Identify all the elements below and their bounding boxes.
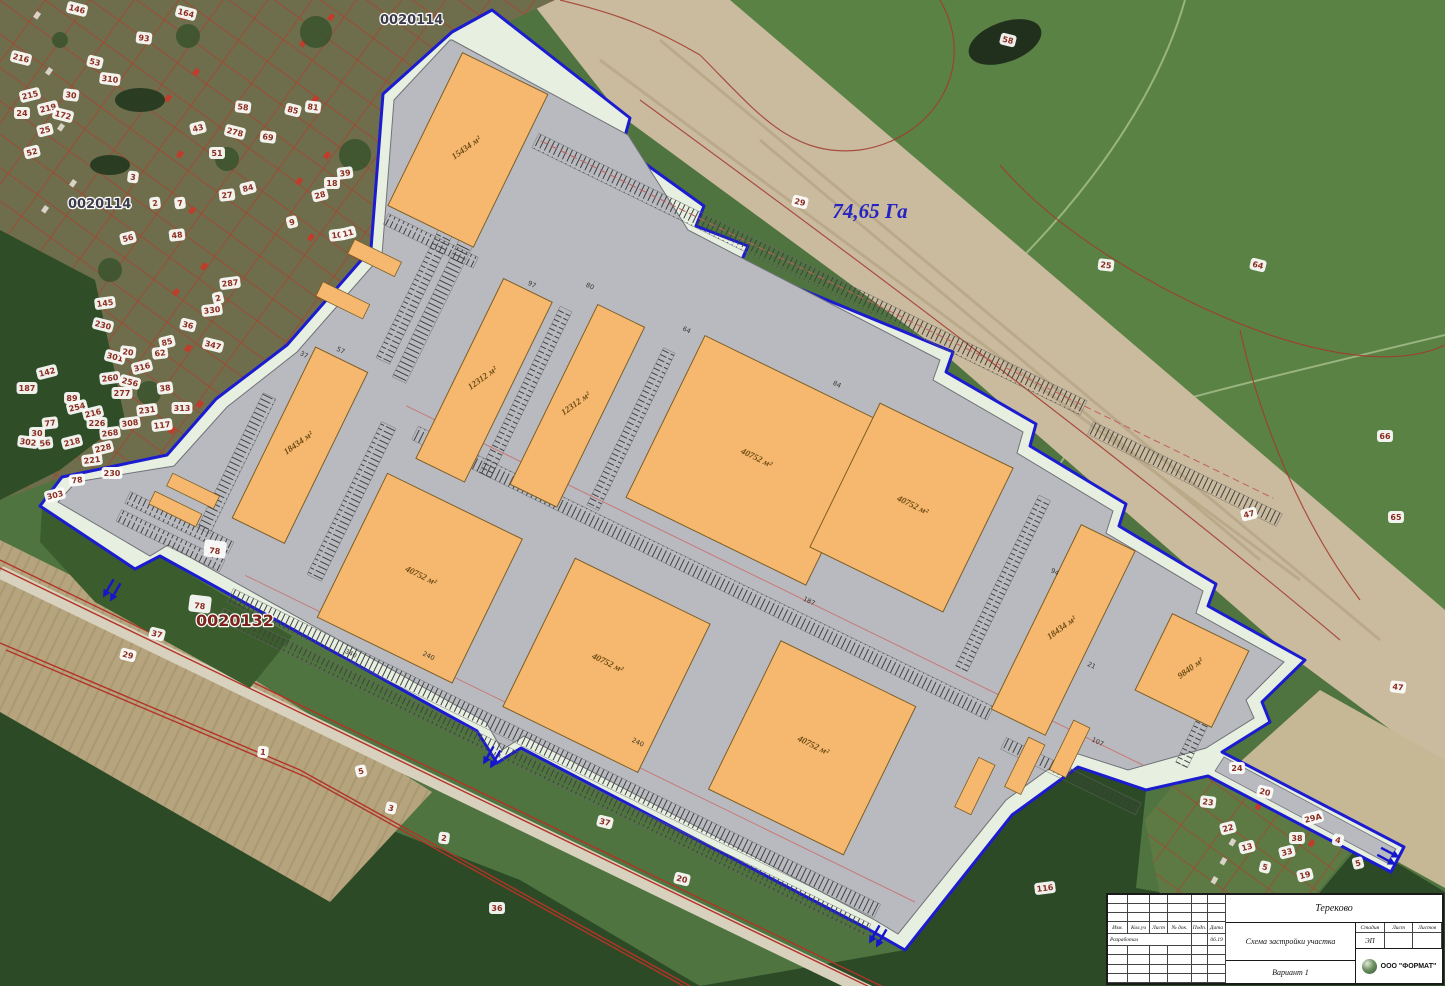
rev-empty-cell [1192, 895, 1208, 904]
parcel-number: 24 [1231, 764, 1243, 773]
rev-empty-cell [1208, 913, 1226, 922]
cadastral-quarter-left: 0020114 [68, 197, 131, 212]
rev-empty-cell [1192, 946, 1208, 955]
parcel-number: 30 [65, 90, 78, 100]
rev-header-cell: Кол.уч [1128, 922, 1150, 933]
village-pond [90, 155, 130, 175]
parcel-number: 226 [89, 419, 106, 428]
parcel-badge: 310 [99, 72, 121, 86]
rev-empty-cell [1108, 965, 1128, 974]
parcel-badge: 226 [87, 417, 108, 429]
parcel-badge: 2 [438, 831, 450, 844]
rev-empty-cell [1192, 974, 1208, 983]
parcel-number: 56 [39, 438, 52, 448]
parcel-number: 230 [104, 469, 121, 478]
rev-empty-cell [1108, 946, 1128, 955]
parcel-badge: 230 [102, 467, 123, 479]
parcel-number: 23 [1202, 797, 1214, 807]
rev-header-cell: Подп. [1192, 922, 1208, 933]
sheet-value [1385, 933, 1414, 948]
parcel-badge: 30 [62, 88, 79, 102]
parcel-badge: 23 [1199, 795, 1216, 809]
rev-empty-cell [1108, 974, 1128, 983]
parcel-badge: 287 [219, 276, 241, 290]
cadastral-quarter-top: 0020114 [380, 13, 443, 28]
stage-value: ЭП [1356, 933, 1385, 948]
date-cell: 06.19 [1208, 934, 1226, 946]
rev-empty-cell [1150, 904, 1168, 913]
parcel-number: 65 [1390, 513, 1402, 522]
rev-empty-cell [1192, 934, 1208, 946]
parcel-badge: 24 [1229, 762, 1245, 774]
company-name: ООО "ФОРМАТ" [1381, 963, 1437, 970]
parcel-number: 66 [1379, 432, 1391, 441]
parcel-badge: 51 [209, 147, 225, 159]
parcel-badge: 260 [99, 371, 121, 385]
rev-empty-cell [1150, 895, 1168, 904]
rev-empty-cell [1192, 955, 1208, 964]
rev-empty-cell [1108, 904, 1128, 913]
parcel-number: 18 [326, 179, 338, 188]
tree-clump [52, 32, 68, 48]
parcel-badge: 81 [304, 100, 321, 114]
parcel-badge: 3 [127, 170, 139, 183]
parcel-badge: 24 [14, 107, 30, 119]
rev-empty-cell [1128, 904, 1150, 913]
rev-header-cell: Дата [1208, 922, 1226, 933]
parcel-badge: 58 [234, 100, 251, 114]
village-pond [115, 88, 165, 112]
rev-empty-cell [1168, 904, 1192, 913]
rev-empty-cell [1150, 974, 1168, 983]
parcel-badge: 38 [156, 381, 173, 395]
parcel-number: 38 [159, 383, 172, 393]
total-area-label: 74,65 Га [832, 199, 907, 223]
title-block: Изм.Кол.учЛист№ док.Подп.ДатаРазработал0… [1106, 893, 1444, 985]
rev-empty-cell [1150, 955, 1168, 964]
rev-empty-cell [1208, 965, 1226, 974]
rev-header-cell: № док. [1168, 922, 1192, 933]
site-plan-map: 15434 м²12312 м²12312 м²40752 м²40752 м²… [0, 0, 1445, 986]
tree-clump [339, 139, 371, 171]
parcel-badge: 7 [174, 196, 186, 209]
parcel-number: 38 [1291, 834, 1303, 843]
parcel-number: 25 [1100, 260, 1113, 270]
parcel-number: 77 [44, 418, 56, 428]
parcel-badge: 25 [1097, 258, 1114, 272]
rev-header-cell: Лист [1150, 922, 1168, 933]
parcel-number: 93 [138, 33, 150, 43]
rev-empty-cell [1128, 913, 1150, 922]
rev-header-cell: Изм. [1108, 922, 1128, 933]
rev-empty-cell [1192, 904, 1208, 913]
project-name: Тереково [1226, 895, 1442, 923]
parcel-number: 2 [441, 834, 448, 844]
tree-clump [176, 24, 200, 48]
rev-empty-cell [1208, 955, 1226, 964]
parcel-number: 47 [1392, 682, 1404, 692]
rev-empty-cell [1150, 913, 1168, 922]
rev-empty-cell [1150, 946, 1168, 955]
parcel-badge: 93 [135, 31, 152, 45]
parcel-badge: 62 [151, 346, 168, 360]
rev-empty-cell [1108, 955, 1128, 964]
company-logo-cell: ООО "ФОРМАТ" [1356, 949, 1442, 983]
parcel-badge: 231 [136, 403, 158, 417]
parcel-badge: 308 [119, 416, 141, 430]
parcel-number: 187 [19, 384, 36, 393]
parcel-number: 3 [130, 173, 137, 183]
parcel-number: 277 [114, 389, 131, 398]
document-title: Схема застройки участка [1226, 923, 1355, 961]
parcel-badge: 78 [203, 539, 227, 559]
sheets-label: Листов [1413, 923, 1442, 932]
rev-empty-cell [1150, 965, 1168, 974]
parcel-number: 69 [262, 132, 275, 142]
rev-empty-cell [1128, 946, 1150, 955]
parcel-number: 36 [491, 904, 503, 913]
parcel-badge: 117 [151, 418, 173, 432]
rev-empty-cell [1108, 913, 1128, 922]
parcel-badge: 330 [201, 303, 223, 317]
parcel-badge: 2 [149, 196, 161, 209]
rev-empty-cell [1168, 965, 1192, 974]
parcel-number: 58 [237, 102, 250, 112]
parcel-badge: 221 [81, 453, 103, 467]
revision-table: Изм.Кол.учЛист№ док.Подп.ДатаРазработал0… [1108, 895, 1226, 983]
parcel-badge: 20 [119, 345, 136, 359]
developed-label: Разработал [1108, 934, 1192, 946]
parcel-number: 78 [71, 475, 84, 485]
rev-empty-cell [1108, 895, 1128, 904]
rev-empty-cell [1208, 946, 1226, 955]
parcel-number: 30 [31, 429, 43, 438]
rev-empty-cell [1128, 965, 1150, 974]
rev-empty-cell [1168, 955, 1192, 964]
parcel-badge: 277 [112, 387, 133, 399]
parcel-number: 2 [152, 199, 159, 209]
stage-label: Стадия [1356, 923, 1385, 932]
parcel-badge: 313 [172, 402, 193, 414]
parcel-number: 51 [211, 149, 223, 158]
rev-empty-cell [1168, 946, 1192, 955]
cadastral-quarter-bottom: 0020132 [196, 611, 274, 630]
parcel-badge: 38 [1289, 832, 1305, 844]
rev-empty-cell [1208, 904, 1226, 913]
parcel-badge: 1 [257, 745, 269, 758]
parcel-number: 27 [221, 190, 233, 200]
parcel-badge: 268 [99, 426, 121, 440]
rev-empty-cell [1168, 895, 1192, 904]
parcel-number: 39 [339, 168, 352, 178]
rev-empty-cell [1192, 965, 1208, 974]
rev-empty-cell [1168, 974, 1192, 983]
rev-empty-cell [1128, 895, 1150, 904]
parcel-number: 62 [154, 348, 166, 358]
parcel-number: 313 [174, 404, 191, 413]
parcel-badge: 65 [1388, 511, 1404, 523]
parcel-number: 48 [171, 230, 184, 240]
parcel-badge: 69 [259, 130, 276, 144]
parcel-number: 78 [194, 601, 207, 611]
tree-clump [98, 258, 122, 282]
stage-sheet-header: Стадия Лист Листов [1356, 923, 1442, 933]
parcel-badge: 48 [168, 228, 185, 242]
parcel-badge: 78 [68, 473, 85, 487]
parcel-number: 20 [122, 347, 135, 357]
rev-empty-cell [1168, 913, 1192, 922]
parcel-badge: 187 [17, 382, 38, 394]
parcel-badge: 66 [1377, 430, 1393, 442]
parcel-badge: 18 [324, 177, 340, 189]
parcel-number: 7 [177, 199, 184, 209]
parcel-number: 81 [307, 102, 320, 112]
parcel-badge: 27 [218, 188, 235, 202]
sheets-value [1413, 933, 1442, 948]
stage-sheet-values: ЭП [1356, 933, 1442, 949]
rev-empty-cell [1208, 895, 1226, 904]
parcel-badge: 116 [1034, 881, 1056, 895]
parcel-badge: 36 [489, 902, 505, 914]
company-logo-icon [1362, 959, 1377, 974]
rev-empty-cell [1128, 974, 1150, 983]
parcel-badge: 302 [17, 435, 39, 449]
parcel-badge: 56 [36, 436, 53, 450]
rev-empty-cell [1208, 974, 1226, 983]
variant-label: Вариант 1 [1226, 961, 1355, 983]
parcel-number: 78 [209, 546, 222, 556]
rev-empty-cell [1128, 955, 1150, 964]
rev-empty-cell [1192, 913, 1208, 922]
sheet-label: Лист [1385, 923, 1414, 932]
parcel-number: 24 [16, 109, 28, 118]
tree-clump [300, 16, 332, 48]
parcel-badge: 47 [1389, 680, 1406, 694]
parcel-badge: 145 [94, 296, 116, 310]
